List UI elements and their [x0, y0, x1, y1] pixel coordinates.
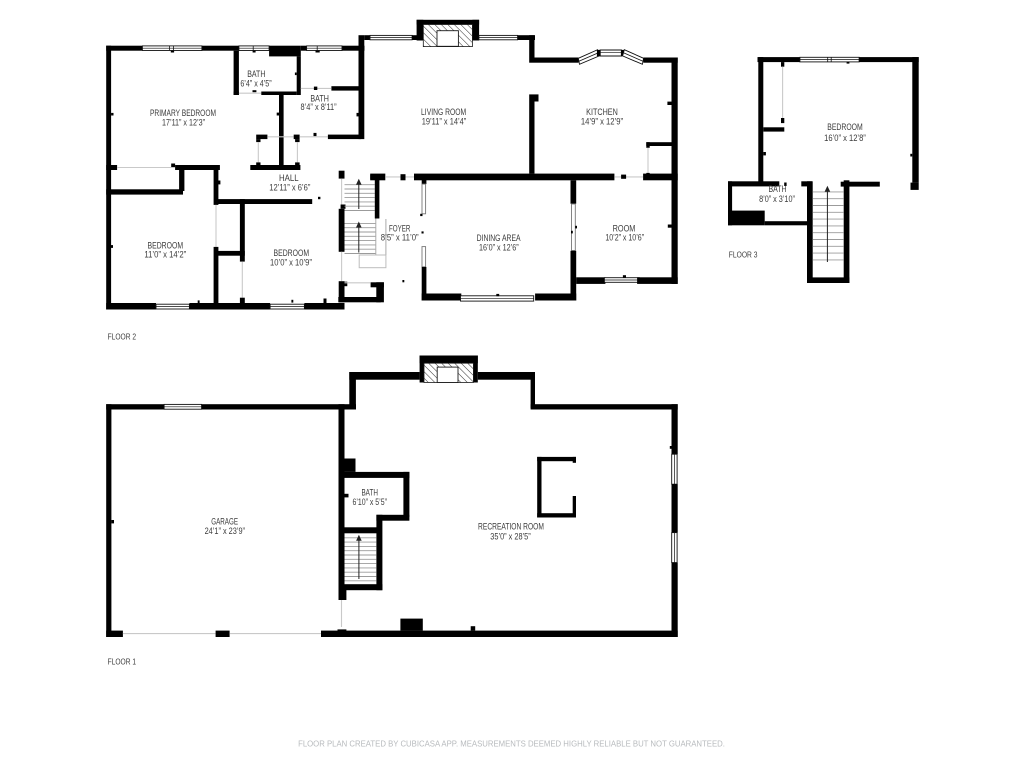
svg-text:DINING AREA: DINING AREA	[477, 233, 521, 243]
svg-text:24’1” x 23’9”: 24’1” x 23’9”	[205, 526, 245, 536]
svg-text:14’9” x 12’9”: 14’9” x 12’9”	[581, 116, 623, 126]
svg-text:RECREATION ROOM: RECREATION ROOM	[478, 522, 544, 532]
svg-text:6’10” x 5’5”: 6’10” x 5’5”	[353, 497, 387, 507]
svg-text:BEDROOM: BEDROOM	[827, 122, 863, 132]
svg-text:BATH: BATH	[769, 184, 787, 194]
svg-text:FLOOR 2: FLOOR 2	[108, 331, 137, 341]
svg-text:8’4” x 8’11”: 8’4” x 8’11”	[301, 102, 337, 112]
svg-text:12’11” x 6’6”: 12’11” x 6’6”	[269, 183, 310, 193]
svg-text:11’0” x 14’2”: 11’0” x 14’2”	[144, 250, 186, 260]
svg-text:GARAGE: GARAGE	[211, 517, 238, 527]
svg-text:FLOOR 1: FLOOR 1	[108, 656, 137, 666]
svg-text:16’0” x 12’8”: 16’0” x 12’8”	[824, 133, 866, 143]
svg-text:35’0” x 28’5”: 35’0” x 28’5”	[490, 531, 530, 541]
svg-text:10’2” x 10’6”: 10’2” x 10’6”	[605, 233, 644, 243]
svg-text:BEDROOM: BEDROOM	[274, 248, 310, 258]
svg-text:BATH: BATH	[247, 69, 265, 79]
svg-text:8’5” x 11’0”: 8’5” x 11’0”	[381, 233, 419, 243]
svg-text:BATH: BATH	[361, 488, 378, 498]
svg-text:LIVING ROOM: LIVING ROOM	[421, 107, 466, 117]
svg-text:8’0” x 3’10”: 8’0” x 3’10”	[759, 194, 795, 204]
svg-text:17’11” x 12’3”: 17’11” x 12’3”	[162, 117, 205, 127]
svg-text:HALL: HALL	[279, 173, 299, 183]
svg-text:10’0” x 10’9”: 10’0” x 10’9”	[270, 258, 312, 268]
svg-text:FLOOR 3: FLOOR 3	[729, 249, 758, 259]
svg-text:16’0” x 12’6”: 16’0” x 12’6”	[479, 243, 519, 253]
svg-text:FLOOR PLAN CREATED BY CUBICASA: FLOOR PLAN CREATED BY CUBICASA APP. MEAS…	[298, 740, 725, 749]
svg-text:KITCHEN: KITCHEN	[586, 107, 618, 117]
svg-text:19’11” x 14’4”: 19’11” x 14’4”	[422, 116, 467, 126]
svg-text:PRIMARY BEDROOM: PRIMARY BEDROOM	[150, 108, 216, 118]
svg-text:6’4” x 4’5”: 6’4” x 4’5”	[240, 79, 271, 89]
